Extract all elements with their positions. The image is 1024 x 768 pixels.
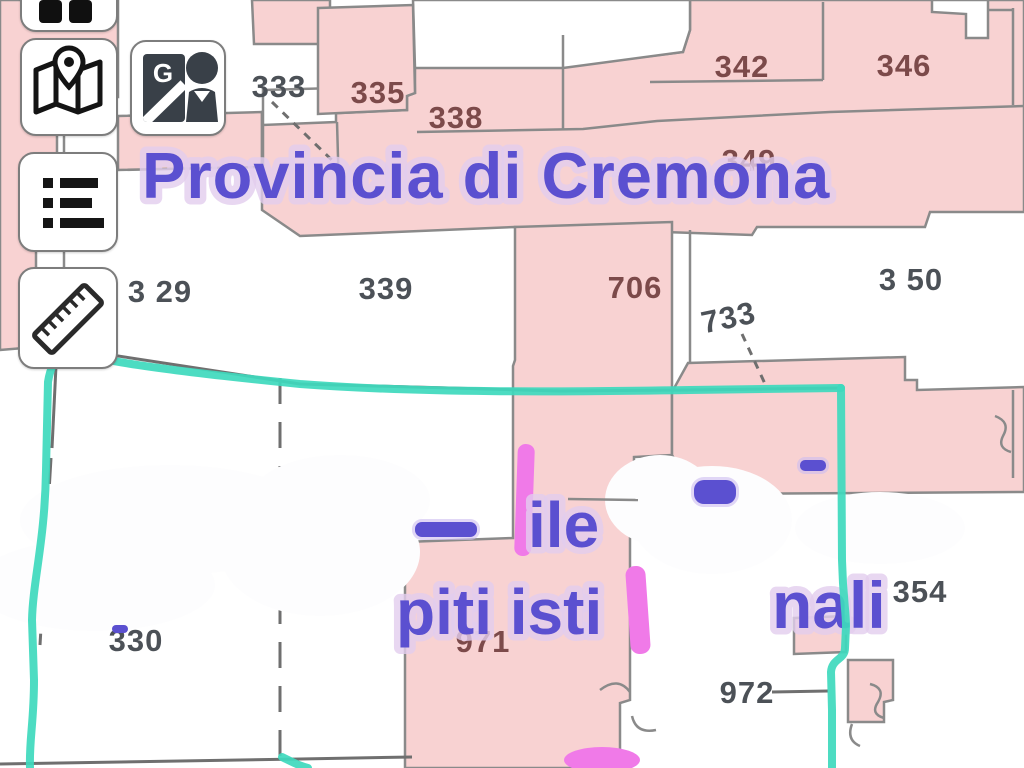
map-viewport[interactable]: 333 335 338 342 346 349 3 29 339 706 733… (0, 0, 1024, 768)
parcel-label-329: 3 29 (128, 274, 192, 309)
layers-button[interactable] (20, 0, 118, 32)
ruler-icon (20, 269, 116, 367)
parcel-label-350: 3 50 (879, 262, 943, 297)
grid-squares-icon (39, 0, 62, 23)
parcel-label-706: 706 (608, 270, 663, 305)
map-pin-icon (22, 40, 116, 134)
parcel-label-335: 335 (351, 75, 406, 110)
parcel-white-gap[interactable] (413, 0, 690, 68)
list-icon (20, 154, 116, 250)
map-locator-button[interactable] (20, 38, 118, 136)
text-remnant (112, 625, 128, 633)
erasure-blob (250, 455, 430, 545)
leader-line-972 (772, 691, 828, 692)
parcel-label-972: 972 (720, 675, 775, 710)
parcel-label-333: 333 (252, 69, 307, 104)
street-view-button[interactable]: G (130, 40, 226, 136)
grid-squares-icon (69, 0, 92, 23)
parcel-label-339: 339 (359, 271, 414, 306)
google-pegman-icon: G (132, 42, 224, 134)
parcel-label-354: 354 (893, 574, 948, 609)
text-remnant (415, 522, 477, 537)
watermark-fragment: nali (772, 568, 886, 642)
google-g-letter: G (153, 58, 173, 88)
legend-button[interactable] (18, 152, 118, 252)
parcel-label-346: 346 (877, 48, 932, 83)
erasure-blob (795, 492, 965, 564)
parcel-label-342: 342 (715, 49, 770, 84)
text-remnant (800, 460, 826, 471)
region-title-watermark: Provincia di Cremona (142, 139, 830, 212)
watermark-fragment: ile (528, 489, 599, 561)
watermark-fragment: piti isti (396, 576, 602, 648)
measure-button[interactable] (18, 267, 118, 369)
parcel-label-338: 338 (429, 100, 484, 135)
text-remnant (694, 480, 736, 504)
